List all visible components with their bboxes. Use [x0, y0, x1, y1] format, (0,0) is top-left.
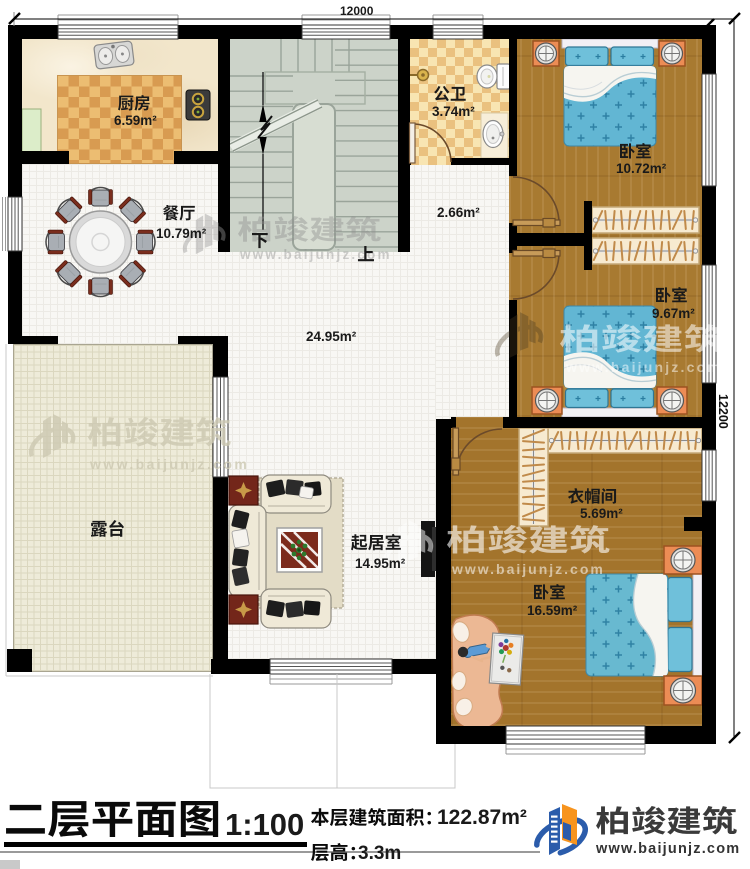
svg-text:www.baijunjz.com: www.baijunjz.com [595, 841, 740, 857]
svg-text:www.baijunjz.com: www.baijunjz.com [565, 359, 722, 375]
svg-text:www.baijunjz.com: www.baijunjz.com [451, 561, 605, 577]
svg-text:12200: 12200 [716, 394, 730, 429]
svg-text:www.baijunjz.com: www.baijunjz.com [89, 456, 249, 472]
